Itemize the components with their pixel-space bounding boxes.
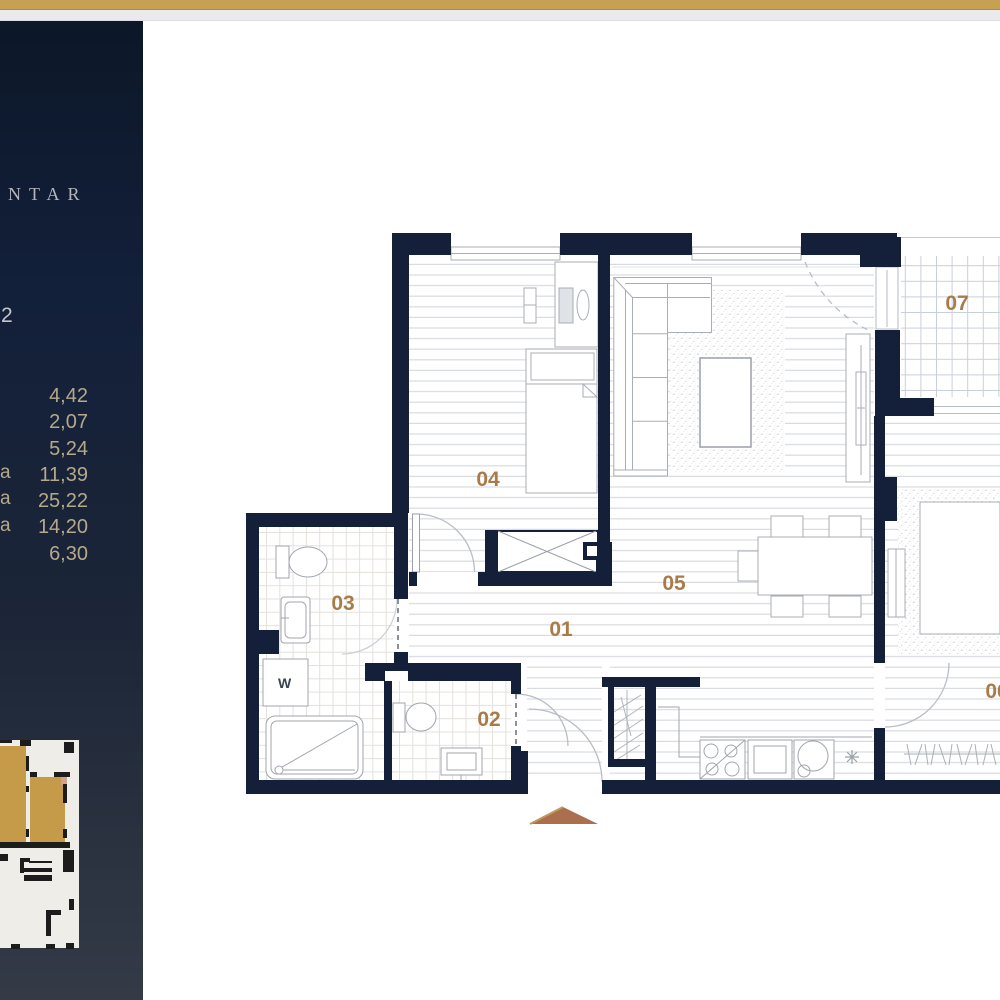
svg-text:W: W bbox=[278, 675, 292, 691]
svg-text:07: 07 bbox=[945, 292, 968, 315]
svg-text:01: 01 bbox=[549, 618, 573, 641]
svg-text:06: 06 bbox=[985, 680, 1000, 703]
svg-text:04: 04 bbox=[476, 468, 500, 491]
svg-text:05: 05 bbox=[662, 572, 686, 595]
svg-text:03: 03 bbox=[331, 592, 354, 615]
svg-text:02: 02 bbox=[477, 708, 500, 731]
